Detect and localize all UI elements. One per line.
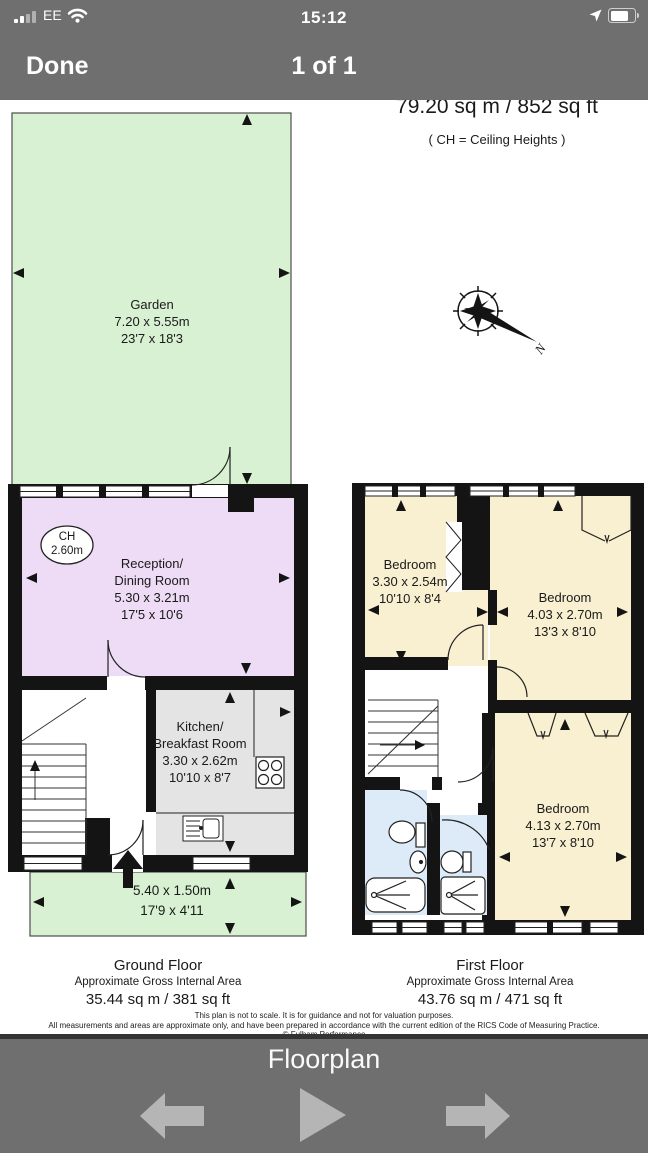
first-floor-caption: First Floor Approximate Gross Internal A… <box>390 957 590 1010</box>
ceiling-note: ( CH = Ceiling Heights ) <box>247 132 648 148</box>
back-arrow-icon <box>140 1090 204 1142</box>
battery-icon <box>608 8 636 23</box>
clock: 15:12 <box>0 8 648 28</box>
bedroom2-label: Bedroom 4.03 x 2.70m 13'3 x 8'10 <box>485 589 645 640</box>
sink-icon <box>183 816 223 841</box>
ceiling-height-label: CH 2.60m <box>31 530 103 558</box>
kitchen-label: Kitchen/ Breakfast Room 3.30 x 2.62m 10'… <box>120 718 280 786</box>
previous-button[interactable] <box>140 1090 204 1142</box>
compass-icon: N <box>453 286 550 358</box>
toolbar-title: Floorplan <box>0 1044 648 1075</box>
next-button[interactable] <box>446 1090 510 1142</box>
ground-stairs <box>22 698 86 855</box>
bottom-toolbar: Floorplan <box>0 1034 648 1153</box>
ground-floor-plan <box>8 113 308 936</box>
basin-icon <box>410 851 426 873</box>
shower-icon <box>441 877 485 914</box>
garden-label: Garden 7.20 x 5.55m 23'7 x 18'3 <box>52 296 252 347</box>
toilet-icon <box>441 851 471 873</box>
bath-icon <box>366 878 425 912</box>
nav-bar: Done 1 of 1 <box>0 38 648 100</box>
front-garden-label: 5.40 x 1.50m 17'9 x 4'11 <box>72 881 272 921</box>
front-door <box>108 820 143 855</box>
first-floor-stairs <box>368 700 438 777</box>
page-indicator: 1 of 1 <box>0 52 648 81</box>
first-floor-plan <box>352 483 644 935</box>
floorplan-canvas[interactable]: N Campbell House, SW1V Approximate Gross… <box>0 100 648 1034</box>
location-arrow-icon <box>589 9 602 22</box>
bedroom1-label: Bedroom 3.30 x 2.54m 10'10 x 8'4 <box>330 556 490 607</box>
ground-floor-caption: Ground Floor Approximate Gross Internal … <box>58 957 258 1010</box>
play-button[interactable] <box>298 1086 348 1144</box>
play-icon <box>298 1086 348 1144</box>
reception-label: Reception/ Dining Room 5.30 x 3.21m 17'5… <box>72 555 232 623</box>
bedroom3-label: Bedroom 4.13 x 2.70m 13'7 x 8'10 <box>483 800 643 851</box>
forward-arrow-icon <box>446 1090 510 1142</box>
status-bar: EE 15:12 <box>0 0 648 38</box>
compass-north-label: N <box>531 340 550 358</box>
